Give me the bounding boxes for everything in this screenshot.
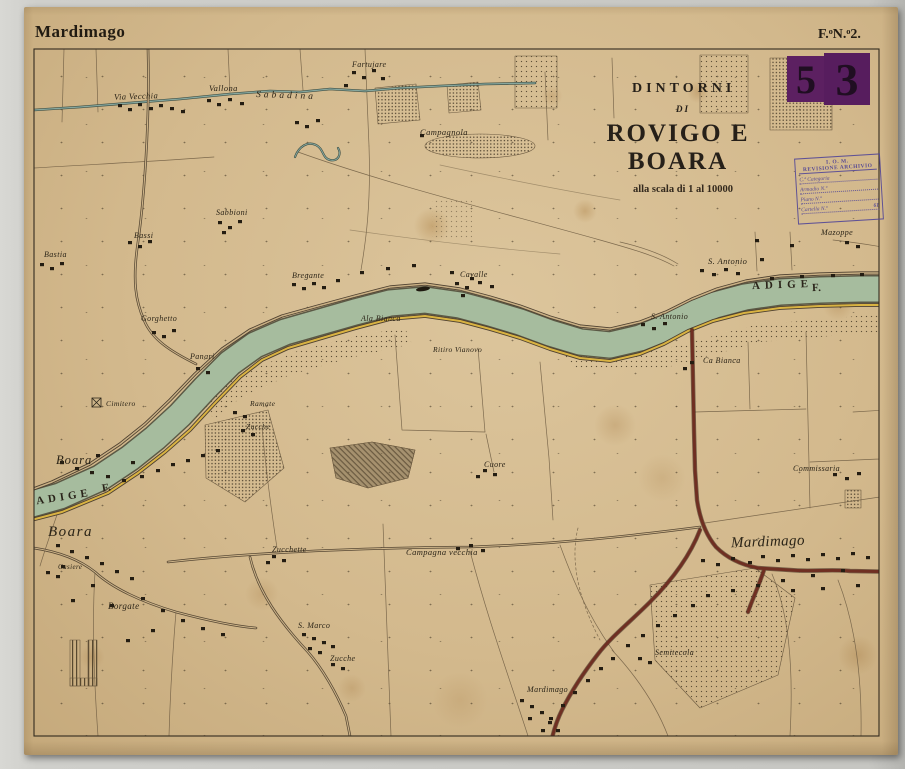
place-label-sabadina: Sabadina [256, 91, 316, 103]
place-label-fartujare: Fartujare [352, 61, 386, 69]
place-label-bassi: Bassi [134, 232, 153, 240]
stamp-53-block2: 3 [824, 53, 870, 105]
place-label-casiere: Casiere [58, 564, 82, 571]
map-scale-note: alla scala di 1 al 10000 [612, 184, 754, 195]
place-label-zucche-2: Zucche [330, 655, 356, 663]
place-label-s-marco: S. Marco [298, 622, 330, 630]
place-label-panari: Panari [190, 353, 215, 361]
red-road [547, 330, 903, 769]
stamp-53-block1: 5 [787, 56, 825, 102]
place-label-ritiro-vianovo: Ritiro Vianovo [433, 346, 482, 354]
place-label-ala-bianca: Ala Bianca [361, 315, 401, 323]
stamp-digit-3: 3 [836, 53, 859, 106]
stamp-field-label: Piano N.º [800, 196, 822, 203]
place-label-cuore: Cuore [484, 461, 506, 469]
folio-number: F.ᵒN.ᵒ2. [818, 27, 861, 43]
map-title-line3: ROVIGO E BOARA [556, 120, 800, 176]
river-label-adige-right: ADIGE [752, 279, 813, 292]
place-label-cimitero: Cimitero [106, 400, 136, 408]
place-label-boara-north: Boara [56, 454, 92, 467]
place-label-borgate: Borgate [108, 602, 139, 611]
river-abbr-right: F. [812, 283, 822, 294]
place-label-ramate: Ramate [250, 400, 275, 408]
revision-archive-stamp: I. O. M. REVISIONE ARCHIVIO C.ª Categori… [794, 153, 884, 224]
place-label-cavalle: Cavalle [460, 271, 488, 279]
stamp-field-label: Armadio N.º [800, 186, 828, 194]
place-label-mardimago-big: Mardimago [731, 534, 805, 552]
place-label-gorghetto: Gorghetto [141, 315, 177, 323]
place-label-sabbioni: Sabbioni [216, 209, 248, 217]
map-title-line2: DI [658, 104, 708, 114]
place-label-bastia: Bastia [44, 251, 67, 259]
place-label-s-antonio-1: S. Antonio [708, 257, 747, 266]
place-label-zucche-1: Zucche [246, 423, 270, 431]
sheet-name: Mardimago [35, 22, 125, 42]
scanned-map-photo: Mardimago F.ᵒN.ᵒ2. 5 3 DINTORNI DI ROVIG… [0, 0, 905, 769]
place-label-mardimago-small: Mardimago [527, 686, 568, 694]
river-abbr-left: F. [101, 482, 112, 494]
place-label-campagna-vecchia: Campagna vecchia [406, 548, 478, 557]
cemetery-symbol [92, 398, 101, 407]
place-label-via-vecchia: Via Vecchia [114, 91, 158, 101]
place-label-campagnola: Campagnola [420, 128, 468, 137]
stamp-field-label: Cartella N.º [801, 206, 828, 214]
place-label-mazoppe: Mazoppe [821, 229, 853, 237]
place-label-commissaria: Commissaria [793, 465, 840, 473]
place-label-semitecola: Semitecola [655, 649, 694, 657]
stamp-field-label: C.ª Categoria [799, 176, 830, 184]
place-label-vallona: Vallona [209, 84, 238, 93]
place-label-bregante: Bregante [292, 272, 324, 280]
stamp-field-value: 61 [873, 203, 879, 209]
stamp-digit-5: 5 [796, 56, 816, 103]
place-label-boara-south: Boara [48, 525, 93, 540]
map-title-line1: DINTORNI [632, 81, 732, 97]
place-label-zucchette: Zucchette [272, 546, 307, 554]
place-label-s-antonio-2: S. Antonio [651, 313, 688, 321]
place-label-ca-bianca: Ca Bianca [703, 357, 741, 365]
map-graphics [0, 0, 905, 769]
